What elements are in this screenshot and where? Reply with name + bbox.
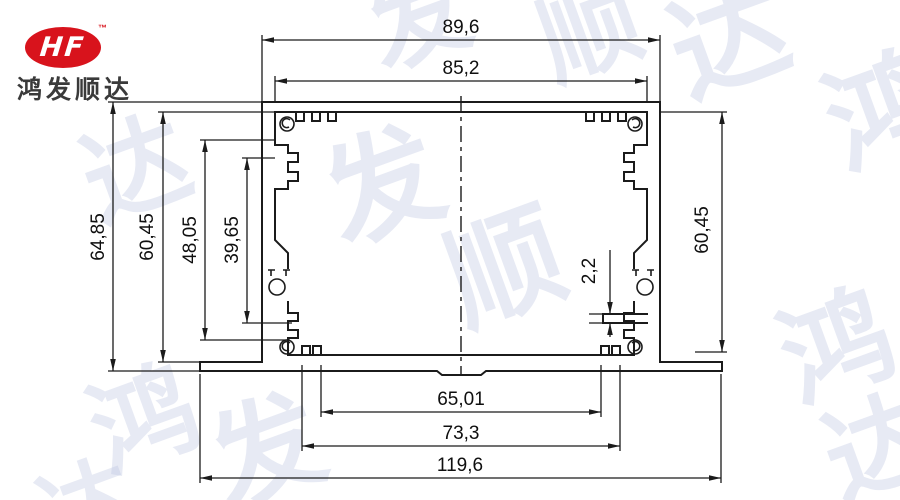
left-wall-features bbox=[268, 112, 344, 355]
dim-bottom-overall-width: 119,6 bbox=[437, 455, 483, 476]
dim-right-inner-height: 60,45 bbox=[692, 206, 713, 254]
top-serration-comb bbox=[296, 112, 344, 121]
dim-top-outer-width: 89,6 bbox=[443, 17, 480, 38]
dim-left-slot-span: 39,65 bbox=[222, 216, 243, 264]
bottom-rail-teeth bbox=[302, 346, 321, 355]
dim-left-overall-height: 64,85 bbox=[88, 213, 109, 261]
screw-boss-top-left bbox=[280, 117, 294, 131]
canvas: 达鸿发顺达鸿达鸿发顺达发 bbox=[0, 0, 900, 500]
dim-left-inner-height: 60,45 bbox=[137, 213, 158, 261]
dim-top-inner-width: 85,2 bbox=[443, 58, 480, 79]
trademark-symbol: ™ bbox=[98, 23, 107, 33]
logo-hf-text: HF bbox=[39, 32, 87, 63]
screw-channel-icon bbox=[268, 270, 290, 295]
dim-bottom-rail-inner-span: 65,01 bbox=[437, 389, 485, 410]
company-name: 鸿发顺达 bbox=[17, 70, 133, 106]
right-wall-features bbox=[578, 112, 654, 355]
screw-boss-top-right bbox=[628, 117, 642, 131]
dim-web-thickness: 2,2 bbox=[579, 258, 600, 284]
brand-logo: HF ™ 鸿发顺达 bbox=[0, 0, 230, 110]
logo-ellipse: HF ™ bbox=[25, 27, 101, 68]
dim-bottom-rail-outer-span: 73,3 bbox=[443, 423, 480, 444]
dim-left-rail-span: 48,05 bbox=[180, 216, 201, 264]
